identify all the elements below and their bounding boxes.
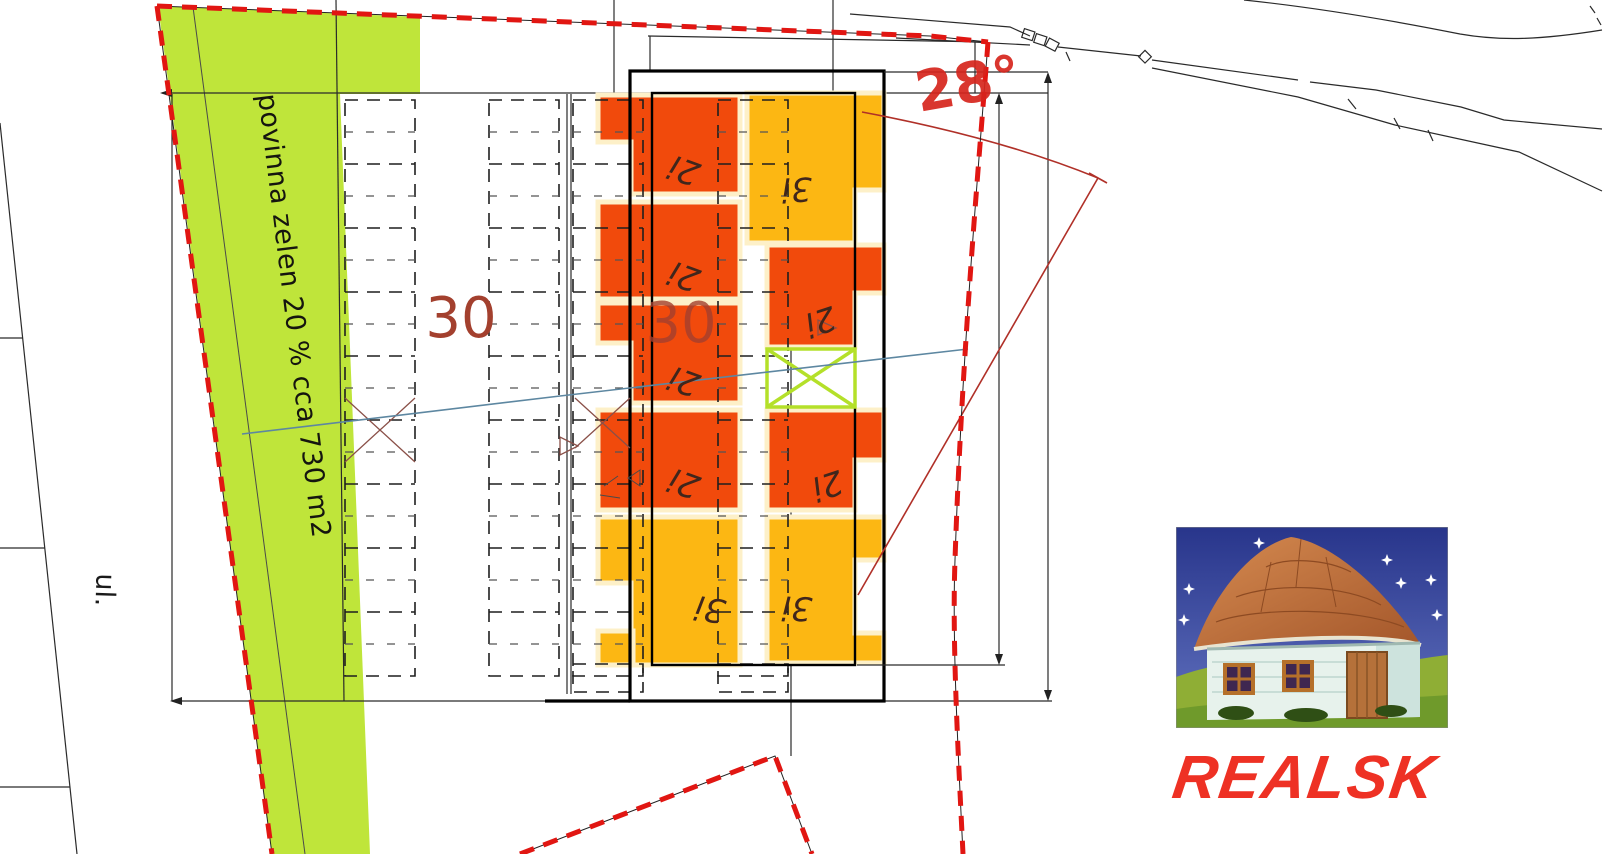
building-blocks	[598, 93, 884, 665]
unit-block-3i-1b	[598, 631, 633, 665]
survey-marks	[345, 320, 836, 498]
street-lines	[0, 123, 77, 854]
logo-house-window	[1282, 660, 1314, 692]
logo-house-image	[1176, 527, 1448, 728]
unit-block-3i-2	[747, 93, 884, 243]
unit-block-3i-3	[767, 517, 884, 663]
site-plan-canvas: povinna zelen 20 % cca 730 m2 ul. 30 30 …	[0, 0, 1603, 854]
lime-cross-box	[767, 349, 855, 407]
roof-angle-annotation	[858, 112, 1107, 595]
road-lines	[850, 0, 1602, 191]
unit-block-2i-6	[767, 410, 884, 510]
logo-house-window	[1223, 663, 1255, 695]
